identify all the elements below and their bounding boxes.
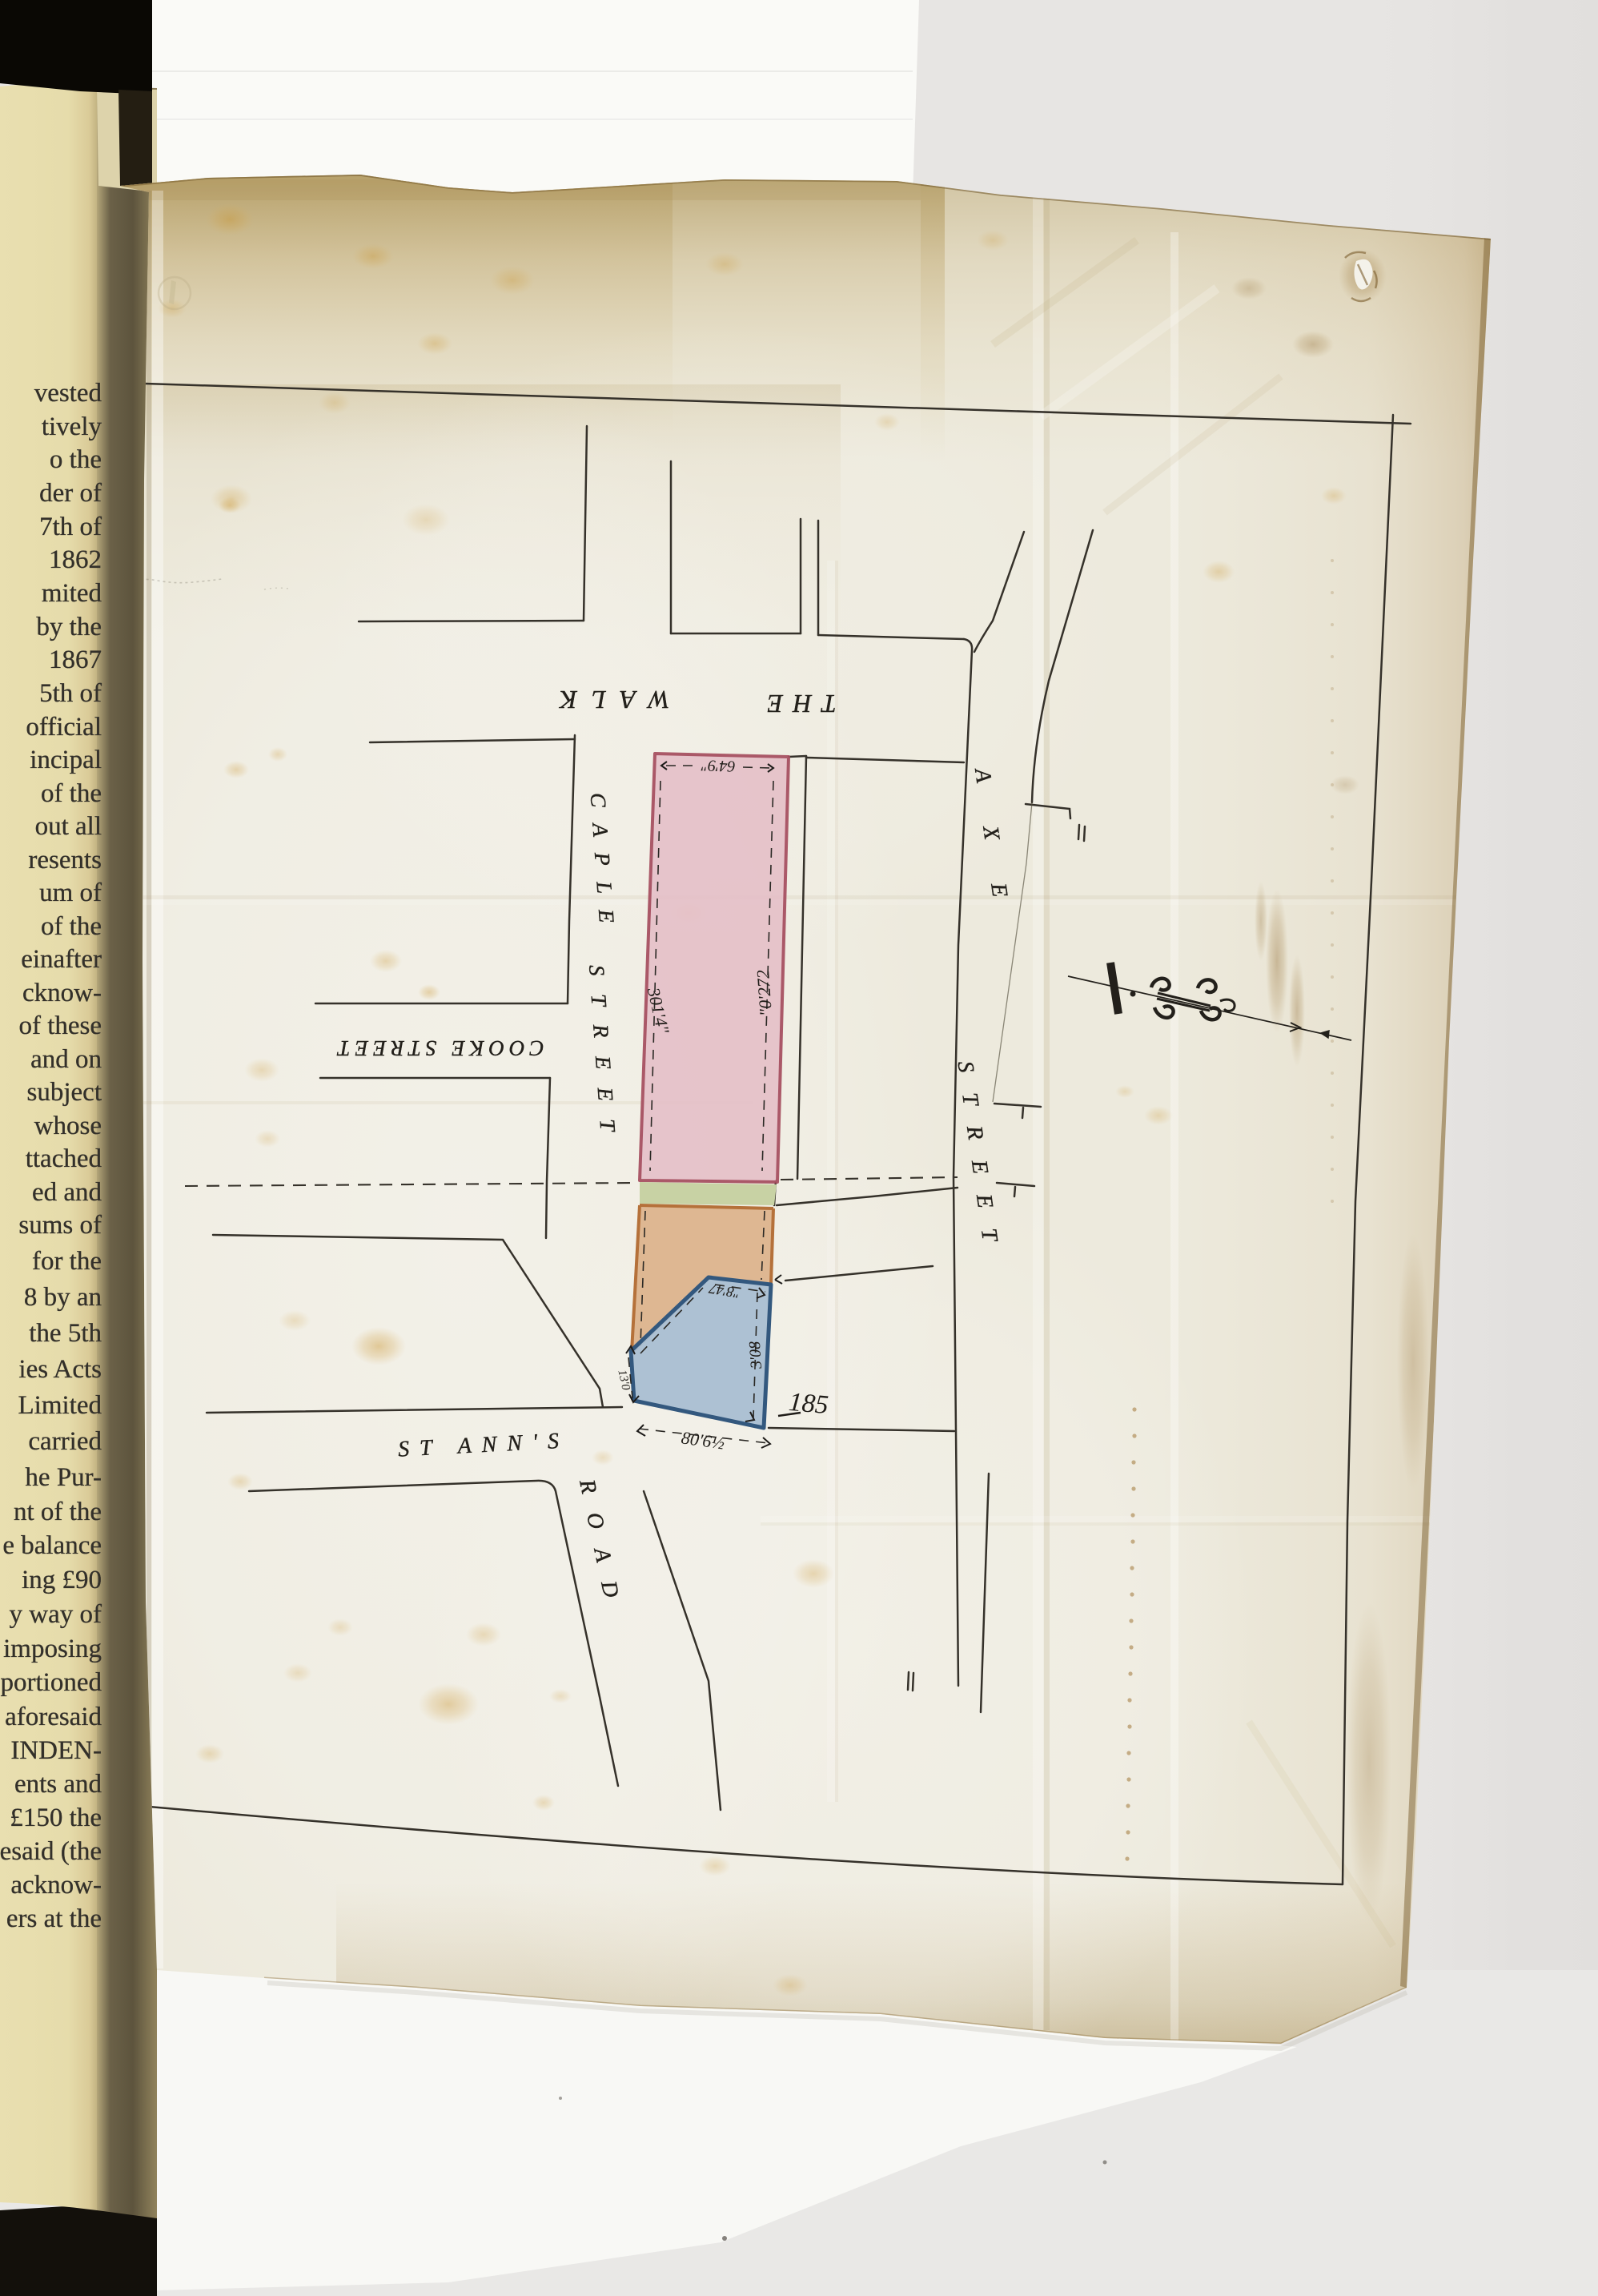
svg-text:out all: out all: [35, 812, 102, 841]
svg-text:he Pur-: he Pur-: [25, 1463, 102, 1492]
svg-text:INDEN-: INDEN-: [10, 1736, 102, 1765]
svg-text:of the: of the: [41, 912, 102, 941]
svg-text:carried: carried: [28, 1427, 102, 1456]
svg-text:ents and: ents and: [14, 1770, 102, 1799]
svg-text:of the: of the: [41, 779, 102, 808]
svg-text:for the: for the: [32, 1247, 102, 1276]
svg-text:der of: der of: [39, 479, 102, 508]
svg-text:WALK: WALK: [545, 686, 669, 714]
svg-text:einafter: einafter: [21, 945, 102, 974]
svg-text:y way of: y way of: [10, 1600, 102, 1629]
svg-text:ttached: ttached: [26, 1144, 102, 1173]
svg-text:185: 185: [788, 1388, 829, 1420]
svg-text:Limited: Limited: [18, 1391, 102, 1420]
svg-text:tively: tively: [42, 412, 102, 441]
svg-text:resents: resents: [28, 846, 102, 875]
svg-text:esaid (the: esaid (the: [0, 1837, 102, 1866]
svg-text:THE: THE: [757, 690, 836, 718]
svg-text:and on: and on: [30, 1045, 102, 1074]
svg-text:imposing: imposing: [3, 1635, 102, 1663]
svg-text:subject: subject: [27, 1078, 102, 1107]
svg-text:vested: vested: [34, 379, 102, 408]
svg-text:official: official: [26, 713, 102, 742]
svg-text:3'08: 3'08: [746, 1341, 765, 1370]
svg-text:um of: um of: [39, 879, 102, 907]
svg-text:the 5th: the 5th: [29, 1319, 102, 1348]
svg-text:1862: 1862: [49, 545, 102, 574]
svg-text:ing £90: ing £90: [22, 1566, 102, 1594]
svg-text:COOKE STREET: COOKE STREET: [333, 1036, 544, 1060]
svg-text:ed and: ed and: [32, 1178, 102, 1207]
svg-text:mited: mited: [42, 579, 102, 608]
svg-text:acknow-: acknow-: [10, 1871, 102, 1900]
svg-text:8 by an: 8 by an: [24, 1283, 102, 1312]
svg-text:whose: whose: [34, 1112, 102, 1140]
svg-text:64'9": 64'9": [701, 756, 736, 774]
svg-text:sums of: sums of: [18, 1211, 102, 1240]
svg-text:7th of: 7th of: [39, 513, 102, 541]
svg-text:1867: 1867: [49, 645, 102, 674]
svg-text:"0'272: "0'272: [753, 969, 776, 1017]
svg-text:cknow-: cknow-: [22, 979, 102, 1007]
svg-text:of these: of these: [18, 1011, 102, 1040]
svg-text:e balance: e balance: [2, 1531, 102, 1560]
svg-text:aforesaid: aforesaid: [5, 1703, 102, 1731]
svg-text:5th of: 5th of: [39, 679, 102, 708]
svg-text:ers at the: ers at the: [6, 1904, 102, 1933]
svg-text:incipal: incipal: [30, 746, 102, 774]
svg-text:£150 the: £150 the: [10, 1803, 102, 1832]
svg-text:nt of the: nt of the: [14, 1498, 102, 1526]
svg-text:o the: o the: [50, 445, 102, 474]
svg-text:ies Acts: ies Acts: [18, 1355, 102, 1384]
svg-text:portioned: portioned: [1, 1668, 102, 1697]
svg-text:by the: by the: [36, 613, 102, 641]
